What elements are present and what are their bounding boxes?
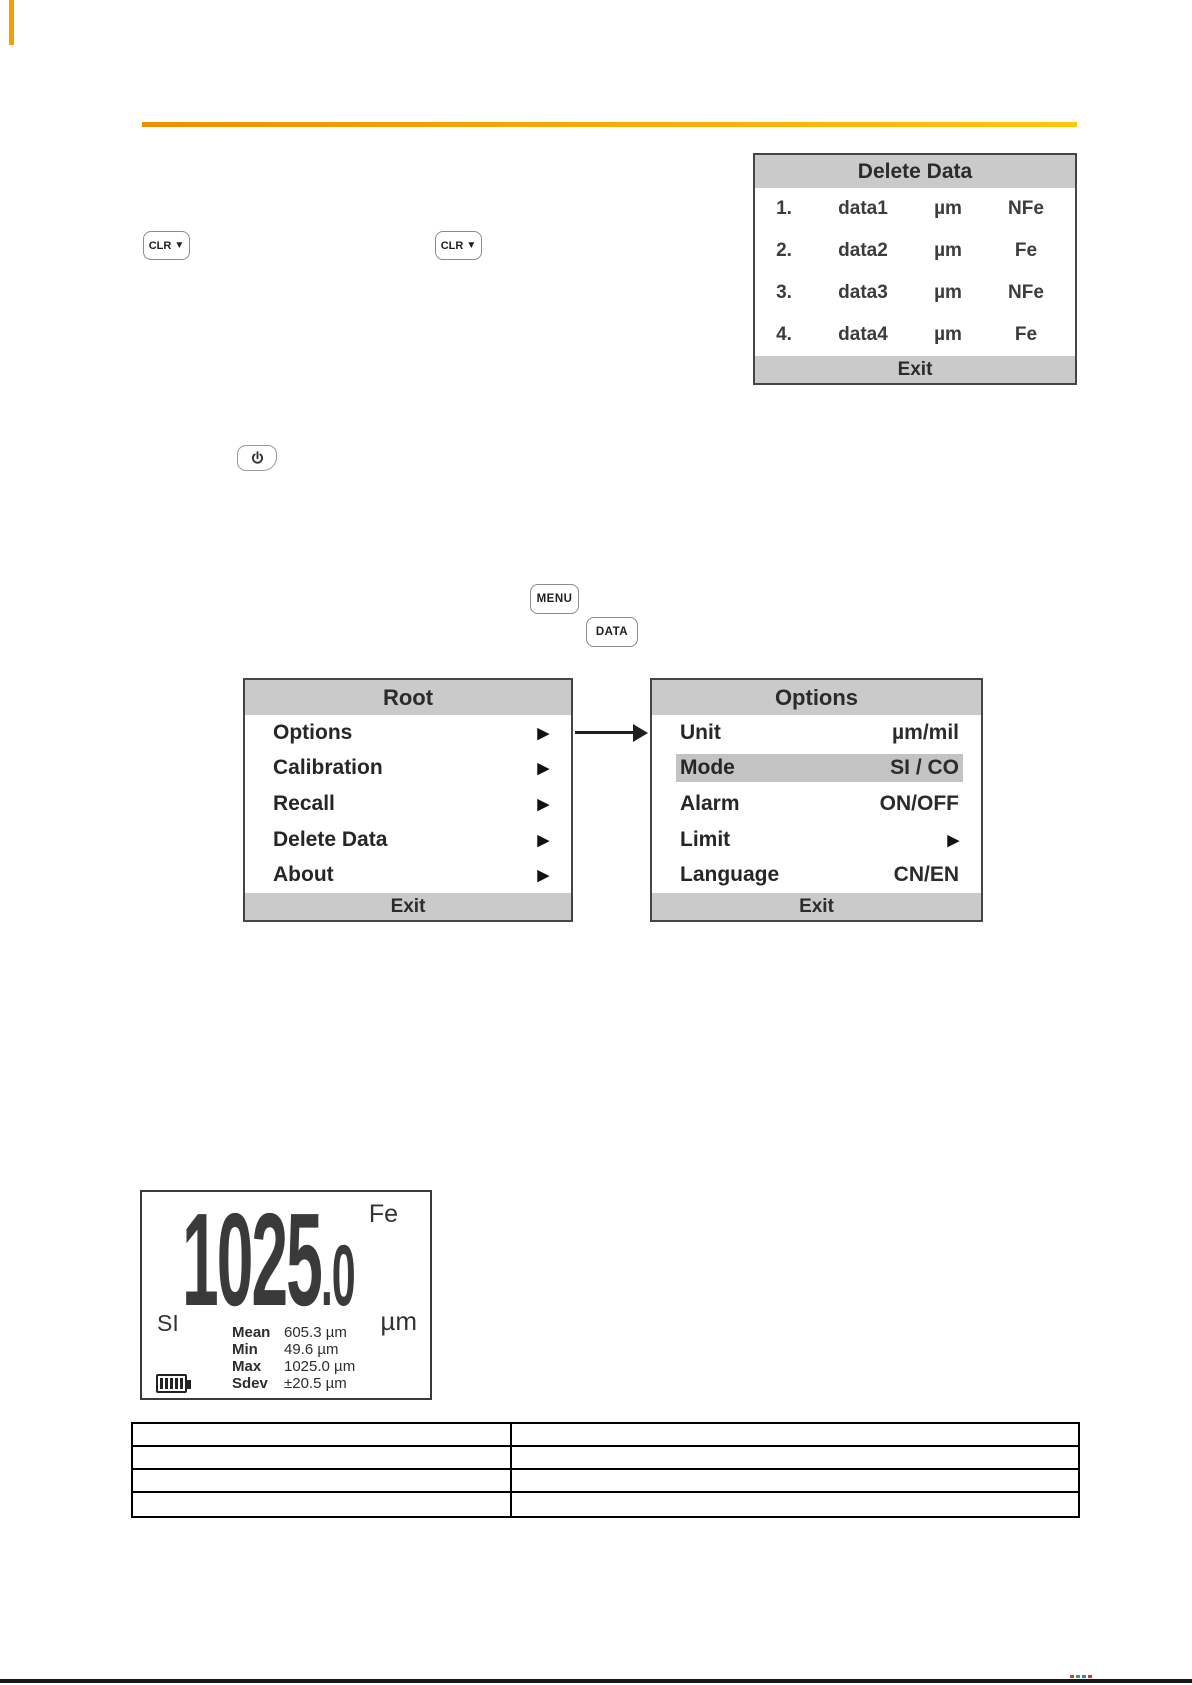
reading-integer: 1025 bbox=[182, 1194, 321, 1326]
statistics-block: Mean 605.3 µm Min 49.6 µm Max 1025.0 µm … bbox=[232, 1324, 355, 1392]
root-menu-title: Root bbox=[245, 680, 571, 715]
data-key-label: DATA bbox=[596, 626, 628, 638]
unit-indicator: µm bbox=[380, 1306, 417, 1337]
menu-item-label: Delete Data bbox=[273, 828, 387, 852]
power-icon bbox=[250, 451, 265, 466]
manual-page: Delete Data 1. data1 µm NFe 2. data2 µm … bbox=[0, 0, 1192, 1685]
table-cell bbox=[133, 1493, 512, 1516]
exit-button[interactable]: Exit bbox=[652, 893, 981, 920]
thickness-reading: 1025 .0 bbox=[182, 1194, 355, 1326]
mode-indicator: SI bbox=[157, 1310, 179, 1337]
submenu-arrow-icon: ▶ bbox=[537, 866, 549, 884]
spec-table bbox=[131, 1422, 1080, 1518]
stat-label: Min bbox=[232, 1341, 284, 1358]
clr-key-button[interactable]: CLR ▼ bbox=[143, 231, 190, 260]
stat-value: 49.6 µm bbox=[284, 1341, 339, 1358]
page-footer-rule bbox=[0, 1679, 1192, 1683]
down-arrow-icon: ▼ bbox=[174, 240, 184, 251]
menu-item-recall[interactable]: Recall ▶ bbox=[269, 790, 553, 818]
row-unit: µm bbox=[913, 198, 983, 220]
menu-key-button[interactable]: MENU bbox=[530, 584, 579, 614]
submenu-arrow-icon: ▶ bbox=[537, 759, 549, 777]
table-cell bbox=[512, 1447, 1078, 1470]
root-menu-screen: Root Options ▶ Calibration ▶ Recall ▶ De… bbox=[243, 678, 573, 922]
row-name: data2 bbox=[813, 240, 913, 262]
row-index: 4. bbox=[755, 324, 813, 346]
menu-item-label: Recall bbox=[273, 792, 335, 816]
menu-item-value: SI / CO bbox=[890, 756, 959, 780]
table-cell bbox=[133, 1424, 512, 1447]
clr-key-button[interactable]: CLR ▼ bbox=[435, 231, 482, 260]
substrate-indicator: Fe bbox=[369, 1200, 398, 1229]
battery-icon bbox=[156, 1374, 187, 1393]
options-menu-list: Unit µm/mil Mode SI / CO Alarm ON/OFF Li… bbox=[652, 715, 981, 893]
row-type: NFe bbox=[983, 282, 1069, 304]
options-menu-screen: Options Unit µm/mil Mode SI / CO Alarm O… bbox=[650, 678, 983, 922]
stat-label: Max bbox=[232, 1358, 284, 1375]
submenu-arrow-icon: ▶ bbox=[537, 724, 549, 742]
delete-data-list: 1. data1 µm NFe 2. data2 µm Fe 3. data3 … bbox=[755, 188, 1075, 356]
table-cell bbox=[133, 1447, 512, 1470]
menu-item-delete-data[interactable]: Delete Data ▶ bbox=[269, 826, 553, 854]
menu-item-label: Mode bbox=[680, 756, 735, 780]
menu-item-label: Calibration bbox=[273, 756, 383, 780]
flow-arrow-head-icon bbox=[633, 724, 648, 742]
list-item[interactable]: 2. data2 µm Fe bbox=[755, 240, 1075, 262]
exit-button[interactable]: Exit bbox=[755, 356, 1075, 383]
color-specks bbox=[1070, 1675, 1092, 1678]
clr-key-label: CLR bbox=[441, 240, 464, 252]
stat-label: Sdev bbox=[232, 1375, 284, 1392]
row-type: NFe bbox=[983, 198, 1069, 220]
row-unit: µm bbox=[913, 324, 983, 346]
menu-item-label: Language bbox=[680, 863, 779, 887]
stat-label: Mean bbox=[232, 1324, 284, 1341]
menu-item-about[interactable]: About ▶ bbox=[269, 861, 553, 889]
exit-button[interactable]: Exit bbox=[245, 893, 571, 920]
menu-item-calibration[interactable]: Calibration ▶ bbox=[269, 754, 553, 782]
stat-value: ±20.5 µm bbox=[284, 1375, 347, 1392]
root-menu-list: Options ▶ Calibration ▶ Recall ▶ Delete … bbox=[245, 715, 571, 893]
table-cell bbox=[512, 1424, 1078, 1447]
menu-item-label: Limit bbox=[680, 828, 730, 852]
menu-item-language[interactable]: Language CN/EN bbox=[676, 861, 963, 889]
clr-key-label: CLR bbox=[149, 240, 172, 252]
page-accent-tick bbox=[9, 0, 14, 45]
menu-item-alarm[interactable]: Alarm ON/OFF bbox=[676, 790, 963, 818]
submenu-arrow-icon: ▶ bbox=[537, 795, 549, 813]
menu-item-value: µm/mil bbox=[892, 721, 959, 745]
options-menu-title: Options bbox=[652, 680, 981, 715]
stat-value: 1025.0 µm bbox=[284, 1358, 355, 1375]
list-item[interactable]: 4. data4 µm Fe bbox=[755, 324, 1075, 346]
measurement-screen: Fe 1025 .0 SI µm Mean 605.3 µm Min 49.6 … bbox=[140, 1190, 432, 1400]
menu-item-unit[interactable]: Unit µm/mil bbox=[676, 719, 963, 747]
delete-data-screen: Delete Data 1. data1 µm NFe 2. data2 µm … bbox=[753, 153, 1077, 385]
menu-item-label: Unit bbox=[680, 721, 721, 745]
delete-data-title: Delete Data bbox=[755, 155, 1075, 188]
menu-item-mode[interactable]: Mode SI / CO bbox=[676, 754, 963, 782]
down-arrow-icon: ▼ bbox=[466, 240, 476, 251]
power-key-button[interactable] bbox=[237, 445, 277, 471]
row-type: Fe bbox=[983, 240, 1069, 262]
stat-value: 605.3 µm bbox=[284, 1324, 347, 1341]
row-index: 1. bbox=[755, 198, 813, 220]
data-key-button[interactable]: DATA bbox=[586, 617, 638, 647]
menu-item-label: Options bbox=[273, 721, 352, 745]
section-divider-rule bbox=[142, 122, 1077, 127]
submenu-arrow-icon: ▶ bbox=[947, 831, 959, 849]
menu-item-label: About bbox=[273, 863, 334, 887]
menu-item-options[interactable]: Options ▶ bbox=[269, 719, 553, 747]
row-name: data4 bbox=[813, 324, 913, 346]
row-name: data3 bbox=[813, 282, 913, 304]
stat-sdev: Sdev ±20.5 µm bbox=[232, 1375, 355, 1392]
table-cell bbox=[512, 1493, 1078, 1516]
row-type: Fe bbox=[983, 324, 1069, 346]
row-index: 2. bbox=[755, 240, 813, 262]
stat-max: Max 1025.0 µm bbox=[232, 1358, 355, 1375]
submenu-arrow-icon: ▶ bbox=[537, 831, 549, 849]
row-unit: µm bbox=[913, 282, 983, 304]
menu-item-label: Alarm bbox=[680, 792, 740, 816]
list-item[interactable]: 1. data1 µm NFe bbox=[755, 198, 1075, 220]
menu-key-label: MENU bbox=[537, 593, 573, 605]
flow-arrow-line bbox=[575, 731, 634, 734]
menu-item-value: CN/EN bbox=[894, 863, 959, 887]
stat-min: Min 49.6 µm bbox=[232, 1341, 355, 1358]
table-cell bbox=[133, 1470, 512, 1493]
row-index: 3. bbox=[755, 282, 813, 304]
list-item[interactable]: 3. data3 µm NFe bbox=[755, 282, 1075, 304]
table-cell bbox=[512, 1470, 1078, 1493]
reading-decimal: .0 bbox=[321, 1233, 355, 1319]
row-name: data1 bbox=[813, 198, 913, 220]
menu-item-limit[interactable]: Limit ▶ bbox=[676, 826, 963, 854]
menu-item-value: ON/OFF bbox=[880, 792, 959, 816]
row-unit: µm bbox=[913, 240, 983, 262]
stat-mean: Mean 605.3 µm bbox=[232, 1324, 355, 1341]
